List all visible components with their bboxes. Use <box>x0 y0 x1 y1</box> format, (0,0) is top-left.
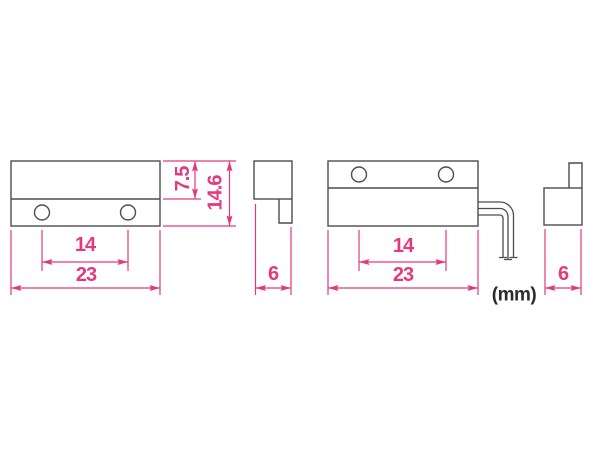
switch-front-dimensions: 14 23 <box>328 230 478 295</box>
magnet-front-view <box>11 161 160 226</box>
switch-front-view <box>328 161 518 260</box>
switch-side-body <box>544 188 582 225</box>
switch-wires <box>478 202 518 260</box>
switch-front-hole-right <box>439 167 454 182</box>
magnet-side-tab <box>279 199 292 223</box>
magnet-front-hole-right <box>121 205 136 220</box>
switch-side-view <box>544 163 582 225</box>
dim-label-switch-depth: 6 <box>558 263 569 285</box>
switch-side-tab <box>569 163 582 188</box>
magnet-side-view <box>254 161 292 223</box>
wire-inner <box>478 215 503 258</box>
magnet-side-body <box>254 161 292 199</box>
dim-label-magnet-height: 14.6 <box>205 175 227 211</box>
dim-label-magnet-hole-spacing: 14 <box>75 234 97 256</box>
magnet-side-dimensions: 6 <box>256 204 292 295</box>
switch-front-hole-left <box>352 167 367 182</box>
switch-side-dimensions: 6 <box>545 229 581 295</box>
unit-note-label: (mm) <box>492 285 537 306</box>
dim-label-magnet-top-section: 7.5 <box>172 166 194 192</box>
switch-front-body <box>328 161 478 226</box>
magnet-front-dimensions: 7.5 14.6 14 23 <box>11 161 236 295</box>
technical-drawing-canvas: 7.5 14.6 14 23 6 <box>0 0 600 450</box>
dim-label-switch-hole-spacing: 14 <box>393 235 415 257</box>
dim-label-magnet-width: 23 <box>76 264 97 286</box>
magnet-front-hole-left <box>35 205 50 220</box>
dim-label-magnet-depth: 6 <box>268 263 279 285</box>
magnet-front-body <box>11 161 160 226</box>
reed-switch-dimension-drawing: 7.5 14.6 14 23 6 <box>0 0 600 450</box>
dim-label-switch-width: 23 <box>393 264 414 286</box>
